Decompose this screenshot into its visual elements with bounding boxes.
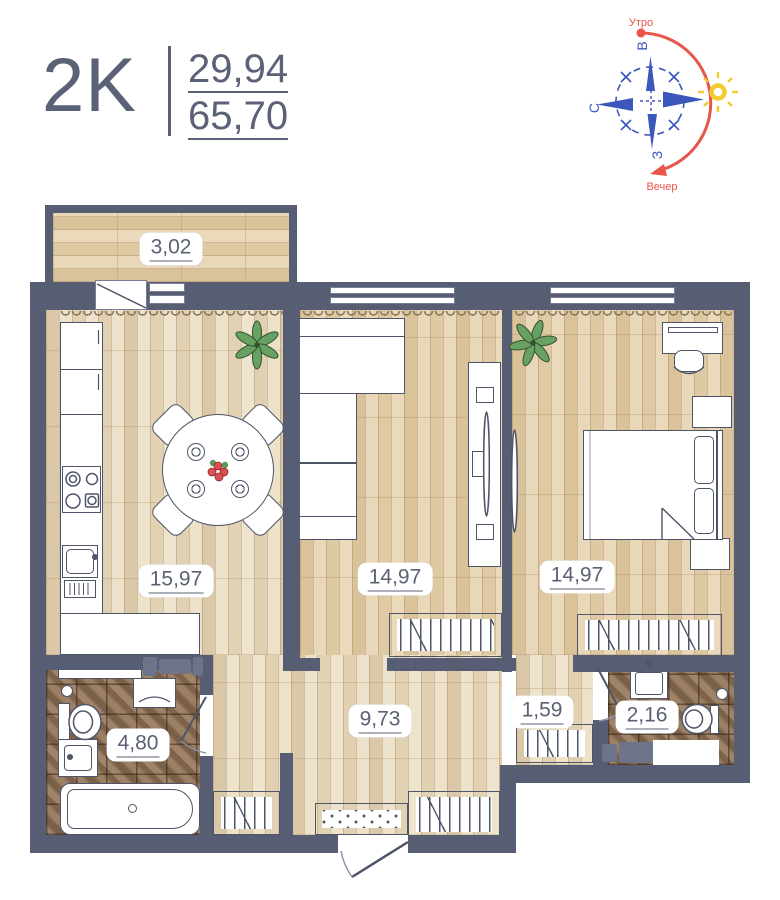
table-flowers-icon <box>208 460 228 481</box>
bathroom-sink-faucet <box>68 755 73 760</box>
niche-area: 1,59 <box>521 699 564 725</box>
stove-burners <box>66 472 99 508</box>
evening-label: Вечер <box>646 181 677 193</box>
compass-center-cross <box>640 90 662 112</box>
wc-faucet-dot <box>647 662 651 666</box>
bed-blanket-fold <box>662 508 694 539</box>
compass-east-label: В <box>634 41 650 50</box>
kitchen-area: 15,97 <box>149 568 204 594</box>
balcony-door-swing-line <box>97 284 146 308</box>
total-area-value: 65,70 <box>188 95 288 140</box>
wc-toilet-bowl <box>682 705 712 734</box>
living-tv <box>484 412 490 516</box>
header-divider <box>168 46 171 136</box>
room-label-kitchen: 15,97 <box>139 565 214 598</box>
room-label-balcony: 3,02 <box>140 233 203 266</box>
room-label-wc: 2,16 <box>616 701 679 734</box>
room-label-bedroom: 14,97 <box>540 561 615 594</box>
bedroom-tv <box>512 430 518 532</box>
room-label-living: 14,97 <box>358 563 433 596</box>
entrance-door-leaf <box>352 842 408 877</box>
sun-icon <box>698 72 738 112</box>
living-area: 14,97 <box>368 566 423 592</box>
living-area-value: 29,94 <box>188 48 288 93</box>
compass-north-label: С <box>586 103 602 113</box>
sun-path-start-dot <box>637 29 646 38</box>
room-label-niche: 1,59 <box>511 696 574 729</box>
room-label-bathroom: 4,80 <box>107 729 170 762</box>
bedroom-plant-icon <box>503 313 563 374</box>
bathroom-door-arc <box>181 741 206 753</box>
apartment-type-title: 2K <box>42 44 137 128</box>
morning-label: Утро <box>629 17 653 29</box>
washing-machine-front-curve <box>139 697 170 702</box>
room-label-hallway: 9,73 <box>349 705 412 738</box>
total-area-text: 65,70 <box>188 95 288 140</box>
living-area-text: 29,94 <box>188 48 288 93</box>
kitchen-sink-faucet <box>93 555 98 560</box>
floor-plan: 2K 29,94 65,70 В С З <box>0 0 780 900</box>
entrance-door-arc <box>341 851 352 877</box>
compass-icon: В С З Утро Вечер <box>575 5 760 200</box>
compass-west-label: З <box>649 151 665 159</box>
bathroom-area: 4,80 <box>117 732 160 758</box>
balcony-area: 3,02 <box>150 236 193 262</box>
bathroom-door-leaf <box>181 697 206 741</box>
kitchen-plant-icon <box>234 321 280 369</box>
wc-area: 2,16 <box>626 704 669 730</box>
hallway-area: 9,73 <box>359 708 402 734</box>
desk-chair-back-arc <box>674 367 704 374</box>
bedroom-area: 14,97 <box>550 564 605 590</box>
sun-path-arrowhead <box>650 164 667 176</box>
